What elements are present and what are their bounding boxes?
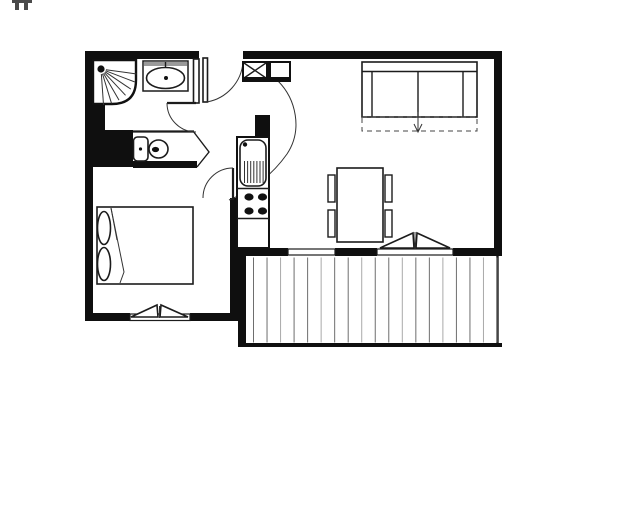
kitchen-sink-drainer-lines [245,161,264,183]
wardrobe [242,61,291,82]
wall-bedroom-bottom-left [85,313,130,321]
living-window [288,249,335,255]
balcony-deck-boards [254,258,498,343]
stove-burner-icon [244,207,253,214]
dining-chair [328,210,335,237]
bathroom [93,60,188,105]
stove-burner-icon [258,207,267,214]
wc-duct-block [93,130,133,167]
wall-kitchen-stub [255,115,270,137]
toilet-button-icon [139,147,142,150]
kitchen-tap-icon [243,142,247,146]
shower-drain-icon [97,65,104,72]
bedroom-door-swing-arc [203,168,233,198]
stove-burner-icon [244,193,253,200]
wall-hall-bathroom [194,59,200,103]
wall-top-left-segment [85,51,199,59]
french-door-leaf-right [416,233,450,248]
wall-living-bottom-c [453,248,502,256]
double-bed [97,207,193,284]
entrance-door-swing-arc [207,62,243,102]
corner-mark-stroke-left [15,3,19,10]
entrance-door-leaf [203,58,208,102]
dining-table [337,168,383,242]
pillow-bottom [98,248,111,281]
living-room [328,62,477,242]
wall-living-bottom-b [335,248,377,256]
corner-mark-bar [12,0,32,3]
wc [134,137,169,161]
wc-niche-bottom-wall [133,161,197,168]
french-door-sill [377,249,453,255]
kitchen-sink [240,140,266,186]
wall-top-right-segment [243,51,502,59]
kitchen [237,137,269,248]
washbasin-drain-icon [164,76,168,80]
balcony-bottom-edge [238,343,502,347]
stove-burner-icon [258,193,267,200]
closet-box [270,62,290,79]
wall-right [494,51,502,256]
sofa-bed-outline [362,62,477,117]
bathroom-door-swing-arc [167,103,196,132]
wall-wc-jog [93,103,105,133]
corner-mark-stroke-right [24,3,28,10]
dining-chair [328,175,335,202]
floor-plan-image [0,0,640,524]
dining-chair [385,175,392,202]
bedroom [97,168,233,321]
pillow-top [98,212,111,245]
wall-balcony-left [238,248,246,347]
dining-chair [385,210,392,237]
wardrobe-bottom-wall [242,77,291,82]
toilet-bowl-center [152,147,159,152]
bedroom-window-leaf-right [160,305,188,317]
corner-mark [12,0,32,10]
bedroom-window-leaf-left [131,305,158,317]
balcony [254,258,498,343]
